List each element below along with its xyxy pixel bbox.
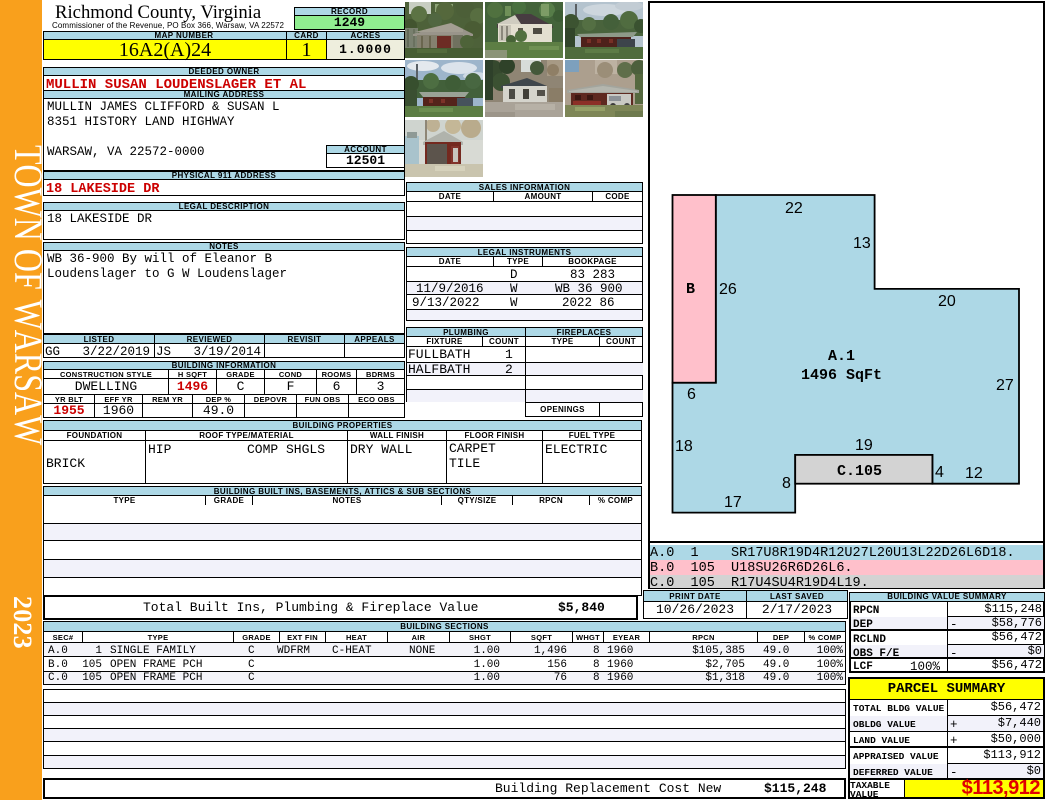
svg-text:2: 2 [8,622,37,635]
svg-text:3: 3 [8,636,37,649]
svg-text:19: 19 [855,437,873,454]
svg-text:C.105: C.105 [837,463,882,480]
svg-text:27: 27 [996,377,1014,394]
svg-text:20: 20 [938,293,956,310]
svg-text:8: 8 [782,475,791,492]
svg-text:B: B [686,281,695,298]
svg-text:17: 17 [724,494,742,511]
svg-text:1496 SqFt: 1496 SqFt [801,367,882,384]
svg-text:0: 0 [8,609,37,622]
svg-text:6: 6 [687,386,696,403]
svg-text:2: 2 [8,596,37,609]
svg-text:A.1: A.1 [828,348,855,365]
svg-text:18: 18 [675,438,693,455]
svg-text:12: 12 [965,465,983,482]
svg-text:4: 4 [935,464,944,481]
svg-text:26: 26 [719,281,737,298]
svg-text:13: 13 [853,235,871,252]
svg-text:22: 22 [785,200,803,217]
